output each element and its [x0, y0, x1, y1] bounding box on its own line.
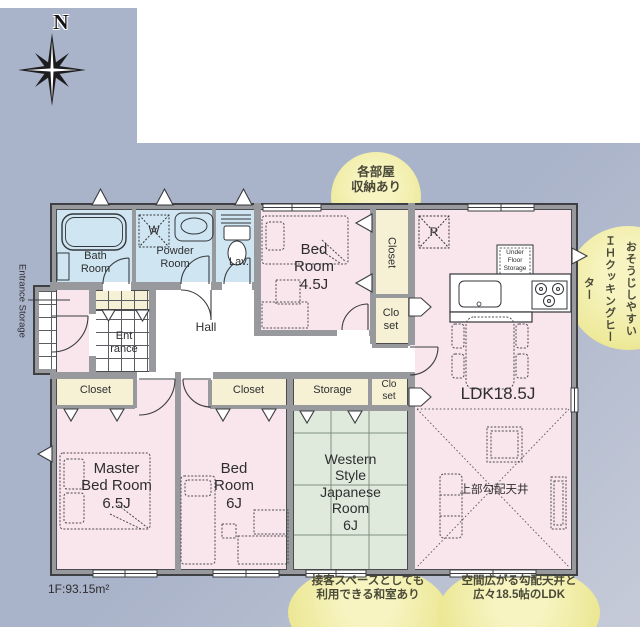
- sloped-ceiling-label: 上部勾配天井: [448, 483, 540, 498]
- wall: [89, 286, 96, 374]
- bubble-ih-note-label: おそうじしやすい ＩＨクッキングヒーター: [584, 230, 634, 348]
- bubble-ldk-note-label: 空間広がる勾配天井と 広々18.5帖のLDK: [442, 573, 596, 605]
- wall: [372, 344, 410, 348]
- closet-bed6-label: Closet: [210, 378, 287, 404]
- wall: [149, 286, 156, 374]
- ldk-label: LDK18.5J: [448, 384, 548, 404]
- closet-master-label: Closet: [56, 378, 135, 404]
- closet-tall-label: Closet: [374, 211, 408, 295]
- entrance-label: Ent rance: [98, 325, 150, 361]
- wall: [175, 372, 181, 570]
- top-margin: [0, 0, 640, 8]
- closet-small-lower-label: Clo set: [370, 375, 408, 407]
- wall: [210, 405, 287, 409]
- bubble-washitsu-note-label: 接客スペースとしても 利用できる和室あり: [294, 573, 442, 605]
- bubble-storage-note-label: 各部屋 収納あり: [333, 162, 419, 198]
- bath-label: Bath Room: [56, 248, 135, 278]
- western-label: Western Style Japanese Room 6J: [295, 446, 406, 538]
- powder-label: Powder Room: [135, 243, 215, 273]
- entrance-storage-label: Entrance Storage: [12, 246, 32, 356]
- wall: [254, 330, 374, 336]
- top-right-white-area: [137, 8, 640, 143]
- master-label: Master Bed Room 6.5J: [58, 458, 175, 514]
- bottom-margin: [0, 627, 640, 640]
- lav-label: Lav.: [222, 256, 256, 270]
- compass-north-label: N: [48, 10, 74, 36]
- washer-label: W: [140, 217, 168, 243]
- floorplan-page: N Bath Room Powder Room Lav. W Bed Room …: [0, 0, 640, 640]
- underfloor-label: Under Floor Storage: [497, 247, 533, 275]
- wall: [408, 372, 415, 570]
- storage-label: Storage: [293, 378, 372, 404]
- wall: [56, 405, 135, 409]
- bedroom6-label: Bed Room 6J: [182, 458, 286, 514]
- closet-small-upper-label: Clo set: [372, 300, 410, 340]
- shoe-cabinet: [95, 290, 151, 310]
- bedroom45-label: Bed Room 4.5J: [256, 238, 372, 296]
- fridge-label: R: [420, 218, 448, 246]
- lav-floor: [215, 209, 258, 288]
- hall-label: Hall: [178, 320, 234, 334]
- floor-area-label: 1F:93.15m²: [48, 581, 178, 597]
